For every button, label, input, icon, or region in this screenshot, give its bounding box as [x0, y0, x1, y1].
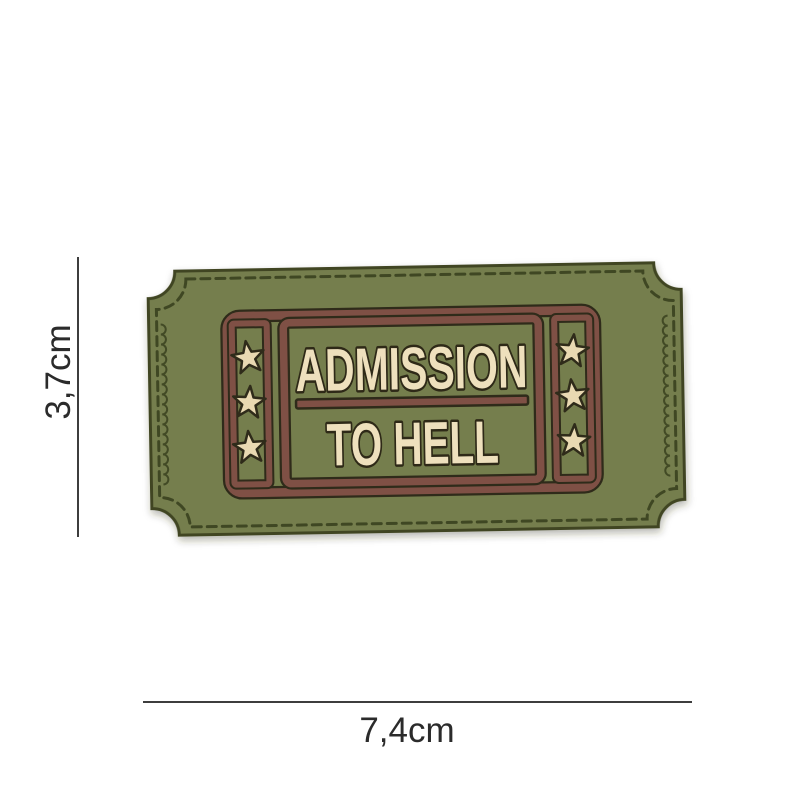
width-dimension-label: 7,4cm: [359, 711, 454, 750]
patch-line1-text: ADMISSION: [295, 333, 528, 404]
patch-illustration: 3,7cm 7,4cm: [0, 0, 800, 800]
height-dimension-label: 3,7cm: [39, 324, 78, 419]
patch-line2-text: TO HELL: [326, 409, 499, 479]
admission-ticket-patch: ADMISSION TO HELL: [148, 262, 686, 535]
product-photo: 3,7cm 7,4cm: [0, 0, 800, 800]
